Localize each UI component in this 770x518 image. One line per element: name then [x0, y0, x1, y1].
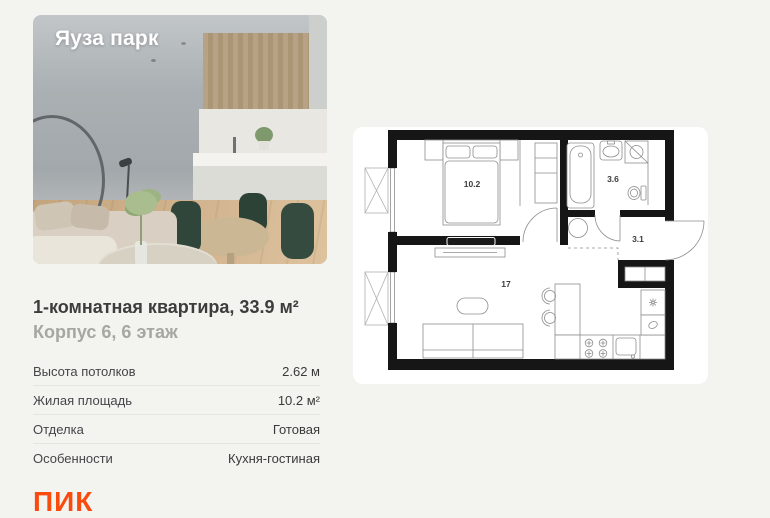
boiler-cabinet — [641, 315, 665, 335]
bedroom-wardrobe — [520, 140, 557, 206]
project-title: Яуза парк — [55, 27, 159, 51]
photo-dining-chair — [281, 203, 314, 259]
sofa — [423, 324, 523, 358]
pik-logo: ПИК — [33, 486, 93, 518]
photo-ceiling-spotlight — [181, 42, 186, 45]
room-label-bedroom: 10.2 — [464, 179, 481, 189]
photo-counter — [193, 153, 327, 166]
row-label: Жилая площадь — [33, 393, 132, 408]
photo-flowers — [125, 191, 157, 215]
row-value: 2.62 м — [282, 364, 320, 379]
coffee-table — [457, 298, 488, 314]
open-boundary-dashed — [568, 248, 618, 260]
photo-sofa-cushion — [70, 203, 110, 231]
table-row: Жилая площадь 10.2 м² — [33, 386, 320, 415]
photo-table-pedestal — [227, 253, 234, 264]
listing-heading: 1-комнатная квартира, 33.9 м² — [33, 297, 333, 318]
row-label: Отделка — [33, 422, 84, 437]
photo-ceiling-spotlight — [151, 59, 156, 62]
bathtub — [567, 143, 594, 208]
table-row: Особенности Кухня-гостиная — [33, 444, 320, 472]
floor-plan: 10.2 3.6 3.1 17 — [353, 127, 708, 384]
floorplan-panel: 10.2 3.6 3.1 17 — [353, 127, 708, 384]
bar-stool — [542, 288, 556, 326]
row-label: Высота потолков — [33, 364, 136, 379]
table-row: Отделка Готовая — [33, 415, 320, 444]
room-label-hallway: 3.1 — [632, 234, 644, 244]
kitchen-counter — [555, 335, 665, 359]
row-value: Кухня-гостиная — [228, 451, 320, 466]
room-label-kitchen-living: 17 — [501, 279, 511, 289]
photo-faucet — [233, 137, 236, 153]
row-label: Особенности — [33, 451, 113, 466]
door-arc — [523, 208, 704, 260]
row-value: Готовая — [273, 422, 320, 437]
details-table: Высота потолков 2.62 м Жилая площадь 10.… — [33, 357, 320, 472]
toilet — [628, 186, 646, 200]
listing-subheading: Корпус 6, 6 этаж — [33, 322, 333, 343]
hallway-pouf — [569, 219, 588, 238]
photo-plant-pot — [259, 141, 269, 150]
balcony — [365, 168, 388, 325]
vent-shaft — [641, 290, 665, 315]
row-value: 10.2 м² — [278, 393, 320, 408]
photo-flower-stem — [140, 211, 142, 245]
bathroom-sink — [600, 141, 622, 160]
room-label-bathroom: 3.6 — [607, 174, 619, 184]
closet-niche — [618, 260, 674, 288]
apartment-photo: Яуза парк — [33, 15, 327, 264]
table-row: Высота потолков 2.62 м — [33, 357, 320, 386]
washing-machine — [625, 141, 648, 163]
photo-kitchen-cabinet — [203, 33, 309, 113]
kitchen-peninsula — [555, 284, 580, 335]
photo-floor-lamp-head — [118, 157, 133, 168]
